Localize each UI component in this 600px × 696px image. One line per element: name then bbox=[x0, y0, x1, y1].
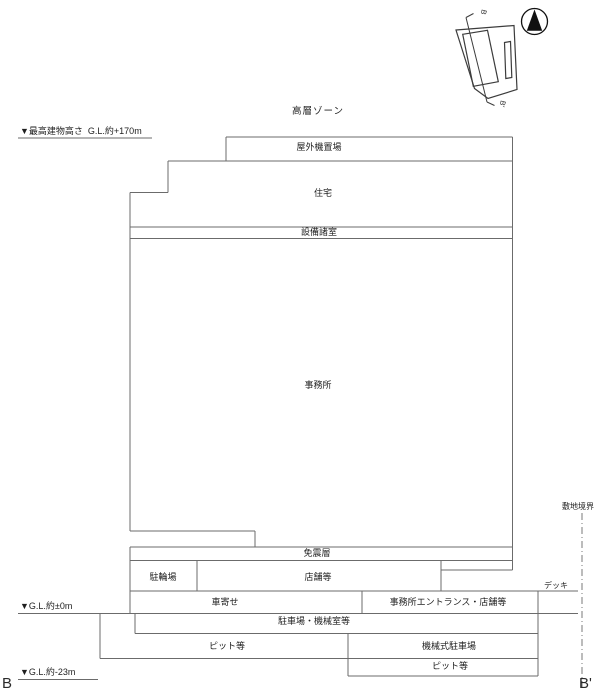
room-label-pit-b2: ピット等 bbox=[432, 662, 468, 671]
key-plan-marker-bottom: B' bbox=[497, 99, 508, 108]
section-marker-right: B' bbox=[579, 676, 592, 691]
room-label-office-entrance-shops: 事務所エントランス・店舗等 bbox=[390, 598, 507, 607]
site-boundary-label: 敷地境界 bbox=[562, 503, 594, 511]
elevation-underlines bbox=[18, 138, 152, 680]
room-label-shops: 店舗等 bbox=[304, 573, 331, 582]
north-arrow-icon bbox=[522, 9, 548, 35]
room-label-pit-b1: ピット等 bbox=[209, 642, 245, 651]
key-plan-site-outline bbox=[456, 26, 517, 99]
building-section-drawing: B B' 高層ゾーン ▼最高建物高さ G.L.約+170m ▼G.L.約±0m … bbox=[0, 0, 600, 696]
room-label-outdoor-equipment: 屋外機置場 bbox=[296, 143, 341, 152]
room-label-parking-machine-rooms: 駐車場・機械室等 bbox=[278, 617, 350, 626]
room-label-office: 事務所 bbox=[304, 381, 331, 390]
deck-label: デッキ bbox=[544, 582, 568, 590]
key-plan-marker-top: B bbox=[479, 8, 489, 15]
section-marker-left: B bbox=[2, 676, 12, 691]
room-label-residential: 住宅 bbox=[314, 189, 332, 198]
key-plan bbox=[456, 14, 517, 106]
elevation-label-gl-minus23: ▼G.L.約-23m bbox=[20, 668, 75, 677]
room-label-bicycle-parking: 駐輪場 bbox=[149, 573, 176, 582]
zone-title: 高層ゾーン bbox=[292, 107, 344, 117]
elevation-label-gl-zero: ▼G.L.約±0m bbox=[20, 602, 72, 611]
elevation-label-max-height: ▼最高建物高さ G.L.約+170m bbox=[20, 127, 142, 136]
key-plan-annex-footprint bbox=[505, 42, 512, 79]
section-line-work: B B' bbox=[0, 0, 600, 696]
room-label-seismic-isolation: 免震層 bbox=[303, 549, 330, 558]
room-label-equipment-rooms: 設備諸室 bbox=[301, 228, 337, 237]
room-label-mechanical-parking: 機械式駐車場 bbox=[422, 642, 476, 651]
room-label-driveway: 車寄せ bbox=[211, 598, 238, 607]
